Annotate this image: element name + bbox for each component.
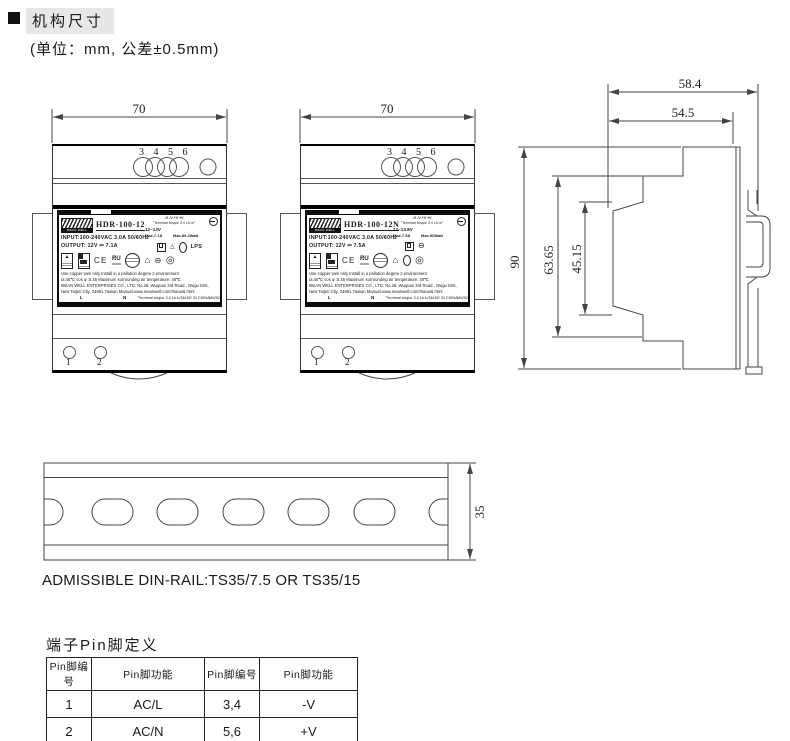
dim-step-height: 63.65 — [541, 245, 556, 274]
max-power: Max.90Watt — [421, 233, 443, 238]
cell-function: -V — [260, 691, 358, 718]
ul-listed-icon — [125, 253, 140, 268]
demko-oval-icon — [179, 242, 187, 253]
side-view-drawing: 58.4 54.5 90 63.65 45.15 — [505, 78, 790, 393]
din-release-tab — [108, 372, 170, 384]
band-divider — [301, 314, 474, 315]
screw-icon — [209, 217, 218, 226]
front-view-hdr-100-12n: 70 3 4 5 6 MEAN WELL HDR-100-12N — [280, 100, 496, 392]
bottom-terminal-number-1: 1 — [314, 357, 319, 367]
datasheet-mechanical-page: 机构尺寸 (单位：mm, 公差±0.5mm) 70 3 4 5 6 — [0, 0, 790, 741]
polarity-markings: -V -V +V +V — [143, 216, 205, 220]
warning-box-icon: ▲ — [309, 253, 321, 269]
company-line-1: MEAN WELL ENTERPRISES CO., LTD. No.28, W… — [61, 283, 210, 288]
voltage-range: 12~13.8V — [393, 227, 413, 232]
band-divider-thick — [301, 205, 474, 209]
indoor-use-icon: ⌂ — [393, 256, 398, 265]
input-rating: INPUT:100-240VAC 3.0A 50/60Hz — [61, 235, 149, 241]
output-rating: OUTPUT: 12V ⎓ 7.5A — [309, 243, 366, 250]
pin-definition-title: 端子Pin脚定义 — [46, 634, 159, 655]
product-label: MEAN WELL HDR-100-12N -V -V +V +V "Termi… — [305, 210, 470, 307]
terminal-torque-top: "Terminal torque 4.4 Lb-in" — [139, 221, 209, 225]
made-in-mark: MADE IN CHINA — [181, 296, 210, 300]
recycle-triangle-icon: △ — [170, 244, 175, 250]
width-dimension-70: 70 — [280, 100, 496, 146]
lps-mark: LPS — [191, 244, 203, 250]
col-header-pin-number-1: Pin脚编号 — [47, 658, 92, 691]
output-rating: OUTPUT: 12V ⎓ 7.1A — [61, 243, 118, 250]
terminal-l-mark: L — [328, 295, 331, 300]
width-dimension-70: 70 — [32, 100, 248, 146]
band-divider — [53, 338, 226, 339]
label-note-1: Use copper wire only Install in a pollut… — [309, 271, 427, 276]
unit-body: 3 4 5 6 MEAN WELL HDR-100-12 -V -V +V +V — [52, 144, 227, 373]
max-power: Max.85.2Watt — [173, 233, 198, 238]
brand-name: MEAN WELL — [309, 228, 341, 233]
voltage-range: 12~13V — [145, 227, 161, 232]
cell-function: +V — [260, 718, 358, 741]
cell-function: AC/L — [92, 691, 205, 718]
dim-rail-height: 35 — [472, 506, 487, 519]
label-code: MW92 — [209, 296, 220, 300]
input-row-icons: ⊖ — [405, 242, 425, 251]
din-ear-left — [280, 213, 301, 300]
front-view-hdr-100-12: 70 3 4 5 6 MEAN WELL HDR-100-12 — [32, 100, 248, 392]
company-line-2: New Taipei City, 24891,Taiwan Manual:www… — [309, 289, 442, 294]
cell-pin: 1 — [47, 691, 92, 718]
manual-box-icon — [78, 253, 90, 269]
polarity-markings: -V -V +V +V — [391, 216, 453, 220]
band-divider — [301, 338, 474, 339]
class2-insulation-icon — [405, 242, 414, 251]
brand-name: MEAN WELL — [61, 228, 93, 233]
terminal-torque-bottom: "Terminal torque 3.0 Lb-in" — [137, 296, 182, 300]
company-line-2: New Taipei City, 24891,Taiwan Manual:www… — [61, 289, 194, 294]
dim-face-height: 45.15 — [569, 244, 584, 273]
pin-definition-table: Pin脚编号 Pin脚功能 Pin脚编号 Pin脚功能 1 AC/L 3,4 -… — [46, 657, 358, 741]
ce-mark: CE — [342, 256, 356, 265]
ce-mark: CE — [94, 256, 108, 265]
class2-insulation-icon — [157, 243, 166, 252]
label-notch — [91, 210, 111, 214]
cell-pin: 5,6 — [205, 718, 260, 741]
label-note-1: Use copper wire only Install in a pollut… — [61, 271, 179, 276]
made-in-mark: MADE IN CHINA — [429, 296, 458, 300]
indoor-use-icon: ⌂ — [145, 256, 150, 265]
ul-listed-icon — [373, 253, 388, 268]
terminal-torque-top: "Terminal torque 4.4 Lb-in" — [387, 221, 457, 225]
col-header-pin-number-2: Pin脚编号 — [205, 658, 260, 691]
spiral-mark-icon: ◎ — [415, 256, 424, 266]
band-divider — [53, 178, 226, 179]
svg-text:70: 70 — [133, 101, 146, 116]
band-divider — [53, 314, 226, 315]
model-number: HDR-100-12 — [96, 220, 145, 231]
bottom-terminal-number-2: 2 — [97, 357, 102, 367]
section-bullet-icon — [8, 12, 20, 24]
manual-box-icon — [326, 253, 338, 269]
svg-text:70: 70 — [381, 101, 394, 116]
terminal-torque-bottom: "Terminal torque 3.0 Lb-in" — [385, 296, 430, 300]
terminal-n-mark: N — [371, 295, 374, 300]
terminal-l-mark: L — [80, 295, 83, 300]
cell-function: AC/N — [92, 718, 205, 741]
top-terminal-holes — [131, 156, 219, 178]
band-divider — [301, 178, 474, 179]
din-rail-caption: ADMISSIBLE DIN-RAIL:TS35/7.5 OR TS35/15 — [42, 572, 360, 589]
din-ear-right — [226, 213, 247, 300]
bottom-terminal-number-1: 1 — [66, 357, 71, 367]
ru-recognized-icon: RU — [360, 256, 369, 265]
cell-pin: 3,4 — [205, 691, 260, 718]
screw-icon — [457, 217, 466, 226]
label-note-2: ta:45℃ cos φ :0.45 Maximum surrounding a… — [61, 277, 181, 282]
table-row: 1 AC/L 3,4 -V — [47, 691, 358, 718]
din-rail-drawing: 35 — [40, 458, 495, 570]
table-row: 2 AC/N 5,6 +V — [47, 718, 358, 741]
dim-body-depth: 54.5 — [672, 105, 695, 120]
input-row-icons: △ LPS — [157, 242, 202, 253]
label-code: MW92 — [457, 296, 468, 300]
product-label: MEAN WELL HDR-100-12 -V -V +V +V "Termin… — [57, 210, 222, 307]
label-notch — [339, 210, 359, 214]
input-rating: INPUT:100-240VAC 3.0A 50/60Hz — [309, 235, 397, 241]
dim-height: 90 — [507, 256, 522, 269]
demko-oval-icon — [403, 255, 411, 266]
warning-box-icon: ▲ — [61, 253, 73, 269]
certification-icons-row: ▲ CE RU ⌂ ◎ — [309, 252, 466, 269]
terminal-n-mark: N — [123, 295, 126, 300]
band-divider — [53, 183, 226, 184]
spiral-mark-icon: ◎ — [166, 256, 175, 266]
ru-recognized-icon: RU — [112, 256, 121, 265]
din-release-tab — [356, 372, 418, 384]
cell-pin: 2 — [47, 718, 92, 741]
top-terminal-holes — [379, 156, 467, 178]
din-ear-right — [474, 213, 495, 300]
band-divider — [301, 183, 474, 184]
unit-tolerance-note: (单位：mm, 公差±0.5mm) — [30, 38, 219, 59]
certification-icons-row: ▲ CE RU ⌂ ⊖ ◎ — [61, 252, 218, 269]
band-divider-thick — [53, 205, 226, 209]
dc-symbol-icon: ⊖ — [155, 257, 162, 265]
dc-symbol-icon: ⊖ — [418, 242, 425, 250]
bottom-terminal-number-2: 2 — [345, 357, 350, 367]
company-line-1: MEAN WELL ENTERPRISES CO., LTD. No.28, W… — [309, 283, 458, 288]
unit-body: 3 4 5 6 MEAN WELL HDR-100-12N -V -V +V +… — [300, 144, 475, 373]
label-note-2: ta:40℃ cos φ :0.45 Maximum surrounding a… — [309, 277, 429, 282]
din-ear-left — [32, 213, 53, 300]
col-header-pin-function-1: Pin脚功能 — [92, 658, 205, 691]
dim-total-depth: 58.4 — [679, 78, 702, 91]
section-title: 机构尺寸 — [26, 8, 114, 34]
col-header-pin-function-2: Pin脚功能 — [260, 658, 358, 691]
